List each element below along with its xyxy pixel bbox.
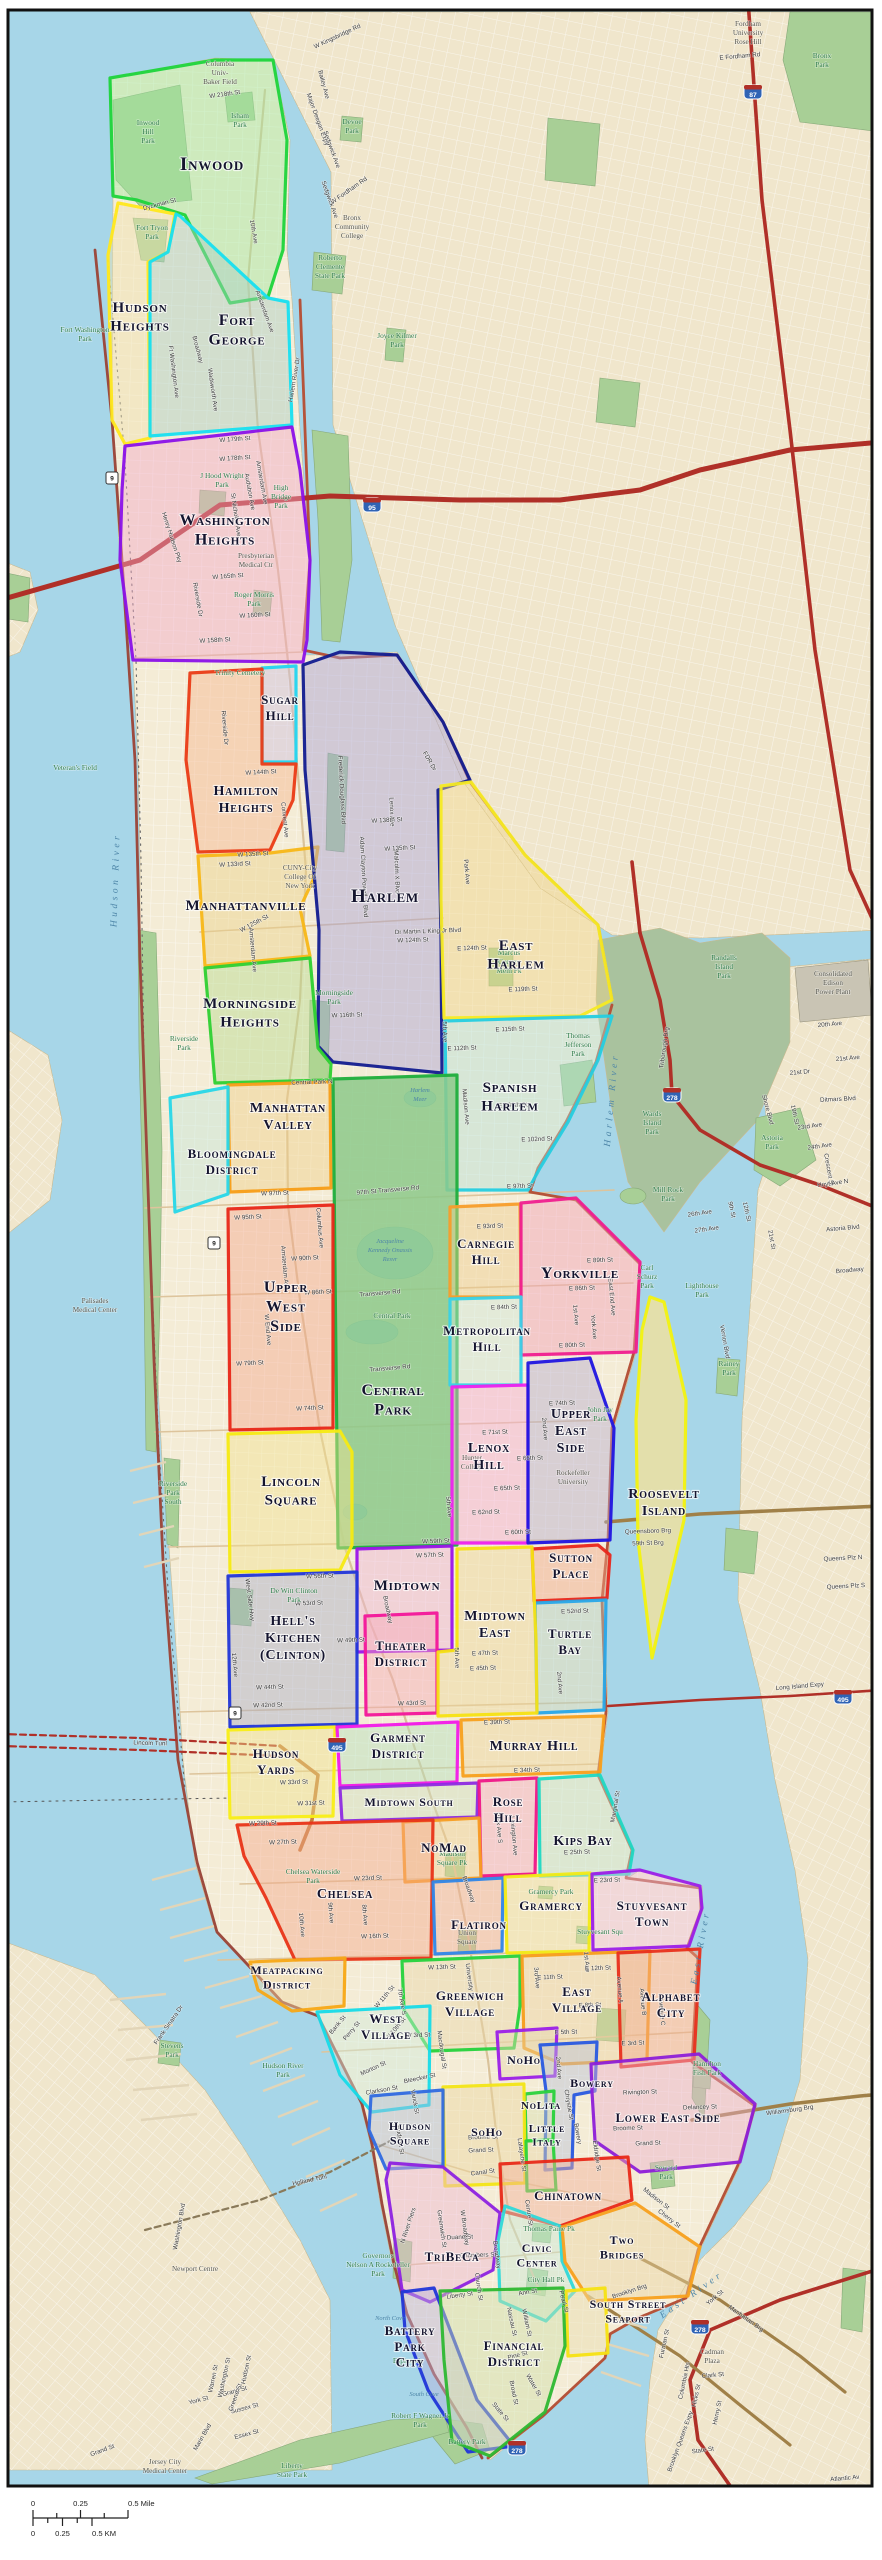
place-label-29: Central Park <box>373 1311 410 1320</box>
street-label-50: W 74th St <box>296 1404 324 1412</box>
region-rose-hill <box>479 1778 537 1876</box>
map-page: Manhattan Neighborhoods Map 879527849549… <box>0 0 882 2560</box>
place-label-28: PresbyterianMedical Ctr <box>238 552 274 569</box>
street-label-143: Grand St <box>468 2147 494 2155</box>
label-lower-east-side: Lower East Side <box>615 2110 720 2125</box>
label-flatiron: Flatiron <box>451 1917 507 1932</box>
street-label-41: E 102nd St <box>521 1135 553 1143</box>
street-label-132: Rivington St <box>623 2088 657 2096</box>
place-label-49: South Cove <box>409 2391 438 2398</box>
street-label-48: W 86th St <box>304 1288 332 1296</box>
route-shield-278-2: 278 <box>663 1088 681 1102</box>
street-label-49: W 79th St <box>236 1359 264 1367</box>
place-label-14: WardsIslandPark <box>643 1109 662 1136</box>
label-chinatown: Chinatown <box>534 2188 602 2203</box>
label-sutton-place: SuttonPlace <box>549 1550 593 1581</box>
street-label-58: E 86th St <box>569 1285 595 1293</box>
mill-rock-island <box>620 1188 646 1204</box>
street-label-93: W 31st St <box>297 1800 325 1808</box>
place-label-25: RobertoClementeState Park <box>315 253 345 280</box>
street-label-105: E 25th St <box>564 1849 590 1857</box>
place-label-45: City Hall Pk <box>528 2275 565 2284</box>
street-label-38: E 115th St <box>495 1025 524 1033</box>
street-label-152: Duane St <box>447 2234 474 2242</box>
street-label-33: 5th Ave <box>441 1021 449 1043</box>
svg-text:9: 9 <box>110 476 114 483</box>
street-label-135: Broome St <box>613 2124 643 2132</box>
place-label-55: Newport Centre <box>172 2265 218 2273</box>
scale-km-half: 0.5 KM <box>92 2529 116 2538</box>
street-label-104: E 34th St <box>514 1767 540 1775</box>
svg-text:9: 9 <box>212 1241 216 1248</box>
label-hudson-square: HudsonSquare <box>389 2119 431 2148</box>
place-label-41: Gramercy Park <box>529 1887 574 1896</box>
label-midtown: Midtown <box>374 1578 441 1594</box>
street-label-65: E 71st St <box>482 1429 508 1437</box>
route-shield-9-7: 9 <box>106 472 118 484</box>
street-label-67: E 65th St <box>494 1485 520 1493</box>
street-label-80: W 42nd St <box>253 1701 283 1709</box>
street-label-103: E 39th St <box>484 1719 510 1727</box>
label-tribeca: TriBeCa <box>425 2249 480 2264</box>
bronx-park <box>783 12 882 132</box>
route-shield-9-8: 9 <box>208 1237 220 1249</box>
street-label-57: E 89th St <box>587 1257 613 1265</box>
street-label-134: Grand St <box>635 2140 661 2148</box>
label-sugar-hill: SugarHill <box>261 692 299 723</box>
route-shield-495-4: 495 <box>834 1690 852 1704</box>
label-chelsea: Chelsea <box>317 1887 373 1902</box>
place-label-52: Battery Park <box>448 2437 485 2446</box>
svg-text:9: 9 <box>233 1711 237 1718</box>
street-label-81: W 43rd St <box>398 1700 426 1708</box>
street-label-106: E 23rd St <box>594 1877 621 1885</box>
street-label-130: E 5th St <box>555 2029 578 2037</box>
label-bowery: Bowery <box>570 2076 614 2090</box>
crotona-park <box>545 118 600 186</box>
label-upper-east-side: UpperEastSide <box>551 1407 591 1456</box>
street-label-84: E 52nd St <box>561 1608 589 1616</box>
label-soho: SoHo <box>471 2125 503 2139</box>
street-label-74: W 56th St <box>306 1573 334 1581</box>
street-label-56: E 93rd St <box>477 1223 504 1231</box>
scale-km-quarter: 0.25 <box>55 2529 70 2538</box>
label-noho: NoHo <box>507 2053 541 2067</box>
place-label-8: Trinity Cemetery <box>215 668 266 677</box>
street-label-68: E 62nd St <box>472 1509 500 1517</box>
street-label-47: W 90th St <box>291 1254 319 1262</box>
map-layers: 8795278495495278278999W 218th StDyckman … <box>0 0 882 2560</box>
scale-mile-quarter: 0.25 <box>73 2499 88 2508</box>
street-label-73: W 57th St <box>416 1552 444 1560</box>
label-yorkville: Yorkville <box>541 1265 619 1282</box>
route-shield-95-1: 95 <box>363 498 381 512</box>
street-label-36: E 124th St <box>457 944 487 952</box>
route-shield-278-6: 278 <box>508 2441 526 2455</box>
street-label-60: E 80th St <box>559 1342 585 1350</box>
street-label-76: 5th Ave <box>453 1647 461 1669</box>
street-label-72: W 59th St <box>422 1538 450 1546</box>
region-gramercy <box>505 1873 590 1953</box>
svg-text:278: 278 <box>511 2448 523 2455</box>
street-label-112: E 12th St <box>585 1965 611 1973</box>
label-financial-district: FinancialDistrict <box>484 2338 545 2369</box>
street-label-59: E 84th St <box>491 1304 517 1312</box>
st-marys-park <box>596 378 640 427</box>
street-label-37: E 119th St <box>508 985 537 993</box>
place-label-1: IshamPark <box>231 111 249 129</box>
place-label-21: BronxPark <box>813 51 832 69</box>
street-label-90: 59th St Brg <box>632 1539 664 1547</box>
place-label-22: FordhamUniversityRose Hill <box>733 20 764 46</box>
label-civic-center: CivicCenter <box>516 2241 557 2270</box>
label-nolita: NoLita <box>521 2100 561 2112</box>
svg-text:495: 495 <box>837 1697 849 1704</box>
label-murray-hill: Murray Hill <box>490 1739 579 1754</box>
street-label-88: Lincoln Tunl <box>133 1739 167 1747</box>
street-label-44: W 97th St <box>261 1190 289 1198</box>
street-label-42: E 97th St <box>507 1183 533 1191</box>
place-label-27: CUNY-CityCollege OfNew York <box>283 864 318 890</box>
street-label-98: W 13th St <box>428 1964 456 1972</box>
label-greenwich-village: GreenwichVillage <box>436 1988 504 2019</box>
place-label-42: Stuyvesant Squ <box>577 1927 623 1936</box>
label-kips-bay: Kips Bay <box>553 1834 612 1849</box>
street-label-46: W 95th St <box>234 1213 262 1221</box>
street-label-97: W 16th St <box>361 1933 389 1941</box>
street-label-95: W 27th St <box>269 1839 297 1847</box>
street-label-94: W 29th St <box>249 1820 277 1828</box>
route-shield-87-0: 87 <box>744 85 762 99</box>
queensbridge-park <box>724 1528 758 1574</box>
place-label-57: Veteran's Field <box>53 763 97 772</box>
route-shield-278-5: 278 <box>691 2320 709 2334</box>
street-label-43: Central Park N <box>291 1078 333 1086</box>
label-little-italy: LittleItaly <box>529 2123 566 2148</box>
scale-mile-half: 0.5 Mile <box>128 2499 155 2508</box>
street-label-32: W 116th St <box>331 1011 362 1019</box>
street-label-39: E 112th St <box>447 1044 476 1052</box>
street-label-31: W 124th St <box>397 936 429 944</box>
street-label-113: E 11th St <box>537 1974 563 1982</box>
street-label-66: E 66th St <box>517 1455 543 1463</box>
place-label-53: LibertyState Park <box>277 2461 307 2479</box>
label-inwood: Inwood <box>180 154 244 175</box>
label-harlem: Harlem <box>351 886 419 907</box>
street-label-69: E 60th St <box>505 1529 531 1537</box>
svg-text:278: 278 <box>666 1095 678 1102</box>
label-midtown-south: Midtown South <box>364 1795 453 1809</box>
label-manhattanville: Manhattanville <box>186 898 307 914</box>
svg-text:95: 95 <box>368 505 376 512</box>
map-canvas: 8795278495495278278999W 218th StDyckman … <box>0 0 882 2560</box>
route-shield-495-3: 495 <box>328 1738 346 1752</box>
place-label-46: Thomas Paine Pk <box>523 2224 575 2233</box>
label-garment-district: GarmentDistrict <box>370 1730 426 1761</box>
label-hudson-yards: HudsonYards <box>253 1746 299 1777</box>
scale-mile-0: 0 <box>31 2499 35 2508</box>
label-upper-west-side: UpperWestSide <box>264 1279 309 1335</box>
scale-km-0: 0 <box>31 2529 35 2538</box>
place-label-48: North Cove <box>374 2315 405 2322</box>
street-label-131: E 3rd St <box>621 2040 644 2048</box>
street-label-78: W 49th St <box>337 1637 365 1645</box>
place-label-43: HamiltonFish Park <box>693 2059 721 2077</box>
route-shield-9-9: 9 <box>229 1707 241 1719</box>
street-label-85: E 47th St <box>472 1650 498 1658</box>
place-label-35: RockefellerUniversity <box>556 1469 590 1486</box>
label-nomad: NoMad <box>421 1840 467 1855</box>
street-label-96: W 23rd St <box>354 1875 382 1883</box>
street-label-79: W 44th St <box>256 1684 284 1692</box>
label-gramercy: Gramercy <box>519 1898 583 1913</box>
svg-text:278: 278 <box>694 2327 706 2334</box>
svg-text:495: 495 <box>331 1745 343 1752</box>
svg-text:87: 87 <box>749 92 757 99</box>
label-theater-district: TheaterDistrict <box>375 1638 428 1669</box>
label-rose-hill: RoseHill <box>493 1794 524 1825</box>
street-label-86: E 45th St <box>470 1665 496 1673</box>
street-label-92: W 33rd St <box>280 1779 308 1787</box>
